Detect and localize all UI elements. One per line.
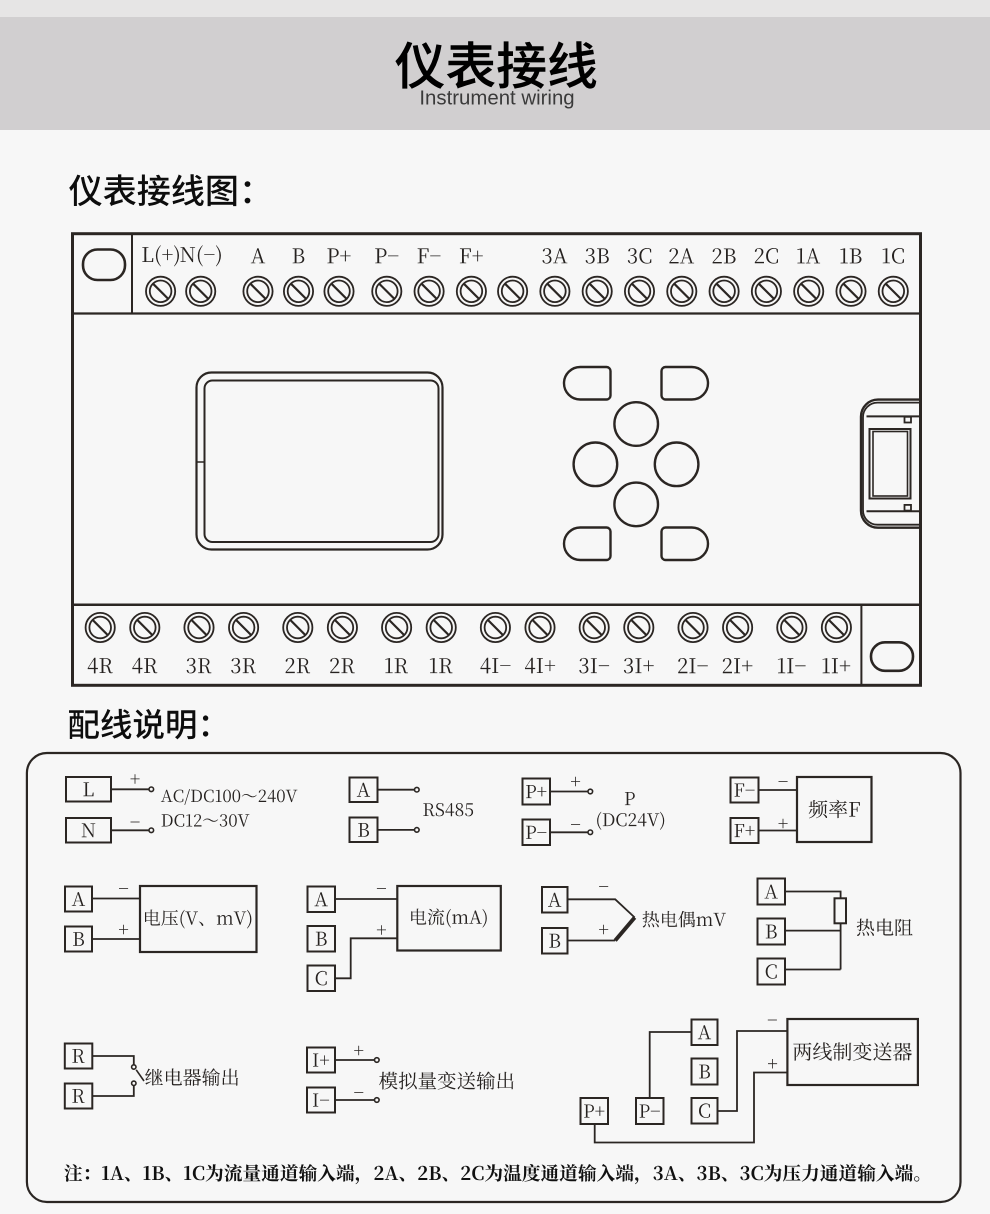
- svg-text:Instrument wiring: Instrument wiring: [419, 88, 574, 110]
